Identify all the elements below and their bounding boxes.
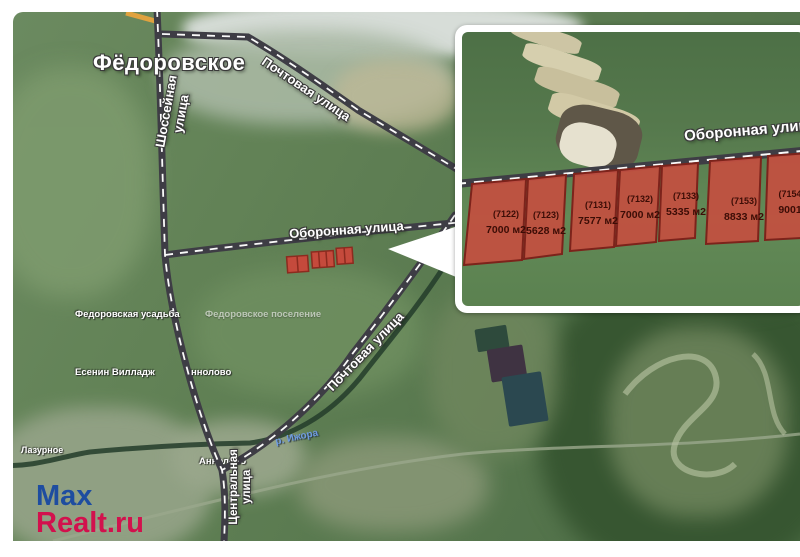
street-label-pochtovaya-bottom: Почтовая улица (324, 297, 418, 394)
street-label-oboronnaya: Оборонная улица (289, 218, 410, 241)
inset-plot-label-7122[interactable]: (7122) 7000 м2 (486, 208, 526, 238)
inset-plot-label-7131[interactable]: (7131) 7577 м2 (578, 199, 618, 229)
plot-area: 7000 м2 (620, 207, 660, 223)
place-label-lazurnoye: Лазурное (21, 445, 63, 455)
plot-id: (7133) (666, 190, 706, 204)
inset-satellite-map[interactable]: Оборонная улица (7122) 7000 м2 (7123) 56… (462, 32, 800, 306)
plot-id: (7154 (778, 188, 800, 202)
river-label-izhora: р. Ижора (274, 428, 319, 448)
maxrealt-watermark: Max Realt.ru (36, 482, 144, 538)
inset-plot-label-7123[interactable]: (7123) 5628 м2 (526, 209, 566, 239)
screenshot-stage: Аннолово (0, 0, 800, 557)
plot-area: 5335 м2 (666, 204, 706, 220)
plot-id: (7123) (526, 209, 566, 223)
plot-area: 9001 (778, 202, 800, 218)
plot-id: (7131) (578, 199, 618, 213)
place-label-yesenin-village: Есенин Вилладж (75, 367, 155, 378)
plot-area: 7577 м2 (578, 213, 618, 229)
plot-area: 8833 м2 (724, 209, 764, 225)
plot-id: (7132) (620, 193, 660, 207)
inset-plot-label-7133[interactable]: (7133) 5335 м2 (666, 190, 706, 220)
place-label-usadba: Федоровская усадьба (75, 309, 180, 320)
plot-id: (7153) (724, 195, 764, 209)
inset-overlay (462, 32, 800, 306)
watermark-realt-ru: Realt.ru (36, 509, 144, 538)
plot-area: 7000 м2 (486, 222, 526, 238)
place-label-poselenie: Федоровское поселение (205, 309, 321, 320)
inset-plot-label-7154[interactable]: (7154 9001 (778, 188, 800, 218)
inset-plot-label-7153[interactable]: (7153) 8833 м2 (724, 195, 764, 225)
plot-area: 5628 м2 (526, 223, 566, 239)
street-label-tsentralnaya: Центральная улица (228, 443, 254, 531)
plot-id: (7122) (486, 208, 526, 222)
place-label-annolovo-partial: ннолово (191, 367, 231, 378)
inset-plot-label-7132[interactable]: (7132) 7000 м2 (620, 193, 660, 223)
street-label-shosseynaya: Шоссейная улица (153, 70, 196, 156)
street-label-pochtovaya-top: Почтовая улица (259, 54, 367, 134)
inset-panel: Оборонная улица (7122) 7000 м2 (7123) 56… (455, 25, 800, 313)
